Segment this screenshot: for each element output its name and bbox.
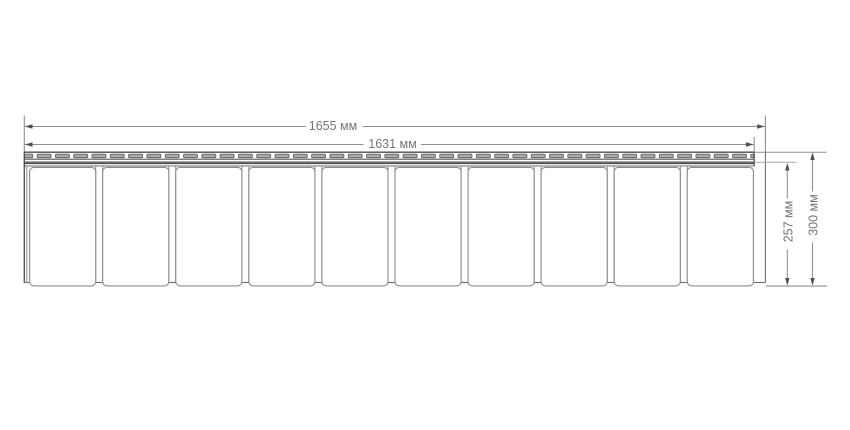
svg-text:1631 мм: 1631 мм xyxy=(368,137,416,151)
svg-text:1655 мм: 1655 мм xyxy=(309,119,357,133)
svg-text:257 мм: 257 мм xyxy=(781,201,795,243)
svg-text:300 мм: 300 мм xyxy=(806,194,820,236)
